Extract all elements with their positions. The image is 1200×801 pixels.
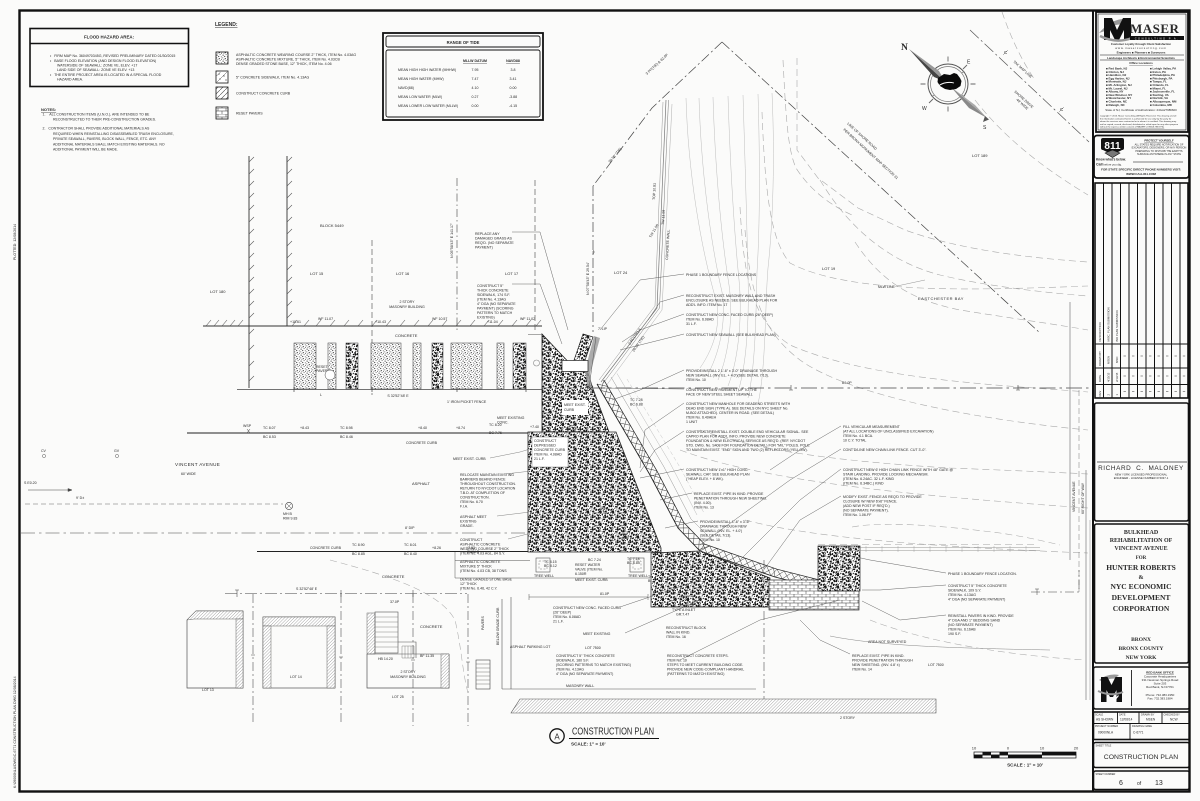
svg-text:0.00: 0.00: [510, 86, 517, 90]
svg-text:(ITEM No. 6.46, 42 C.Y.: (ITEM No. 6.46, 42 C.Y.: [460, 587, 497, 591]
svg-text:PENETRATION THROUGH NEW SHEETI: PENETRATION THROUGH NEW SHEETING.: [694, 497, 767, 501]
svg-text:(SCORING PATTERNS TO MATCH EXI: (SCORING PATTERNS TO MATCH EXISTING): [556, 663, 631, 667]
svg-text:TREE WELL: TREE WELL: [534, 574, 554, 578]
svg-text:FILL VEHICULAR MEASUREMENT: FILL VEHICULAR MEASUREMENT: [843, 425, 901, 429]
svg-text:WEARING COURSE 2" THICK: WEARING COURSE 2" THICK: [460, 547, 510, 551]
svg-text:VINCENT AVENUE: VINCENT AVENUE: [1072, 481, 1076, 512]
svg-text:ASPHALTIC CONCRETE WEARING COU: ASPHALTIC CONCRETE WEARING COURSE 2" THI…: [236, 53, 356, 57]
svg-text:+7.40: +7.40: [530, 425, 539, 429]
svg-text:0.27: 0.27: [472, 95, 479, 99]
svg-text:CV: CV: [41, 449, 47, 453]
svg-text:+8.43: +8.43: [300, 426, 309, 430]
svg-text:MSEN: MSEN: [1146, 718, 1156, 722]
svg-text:7.47: 7.47: [472, 77, 479, 81]
svg-text:ITEM No. 4.08AD: ITEM No. 4.08AD: [534, 453, 562, 457]
svg-text:W: W: [922, 106, 927, 112]
svg-text:REV: REV: [1098, 391, 1102, 397]
svg-text:Fax: 732.383.1984: Fax: 732.383.1984: [1147, 697, 1172, 701]
svg-text:BC 7.24: BC 7.24: [588, 558, 601, 562]
svg-text:THROUGHOUT CONSTRUCTION.: THROUGHOUT CONSTRUCTION.: [460, 482, 516, 486]
svg-text:5" CONCRETE SIDEWALK, ITEM No.: 5" CONCRETE SIDEWALK, ITEM No. 4.13AG: [236, 76, 310, 80]
svg-text:(26" DEEP): (26" DEEP): [553, 611, 571, 615]
svg-text:REHABILITATION OF: REHABILITATION OF: [1110, 538, 1173, 544]
svg-text:TC 8.07: TC 8.07: [263, 426, 276, 430]
svg-text:NEW SHEETING. (INV. 4.8' ±): NEW SHEETING. (INV. 4.8' ±): [852, 663, 900, 667]
svg-text:(ITEM No. 4.13AG: (ITEM No. 4.13AG: [477, 298, 506, 302]
svg-text:SURFACE ANYWHERE IN ANY STATE: SURFACE ANYWHERE IN ANY STATE: [1137, 153, 1181, 156]
svg-text:REINSTALL PAVERS IN KIND. PROV: REINSTALL PAVERS IN KIND. PROVIDE: [948, 614, 1014, 618]
svg-text:6.40: 6.40: [608, 470, 615, 474]
svg-text:CONSTRUCT NEW CONC. FACED CURB: CONSTRUCT NEW CONC. FACED CURB (26" DEEP…: [686, 313, 773, 317]
svg-text:4.10: 4.10: [472, 86, 479, 90]
svg-text:EASTCHESTER BAY: EASTCHESTER BAY: [918, 296, 964, 301]
svg-text:PROVIDE PENETRATION THROUGH: PROVIDE PENETRATION THROUGH: [852, 659, 913, 663]
svg-text:PATTERN TO MATCH: PATTERN TO MATCH: [477, 311, 513, 315]
svg-text:4" DGA (NO SEPARATE PAYMENT): 4" DGA (NO SEPARATE PAYMENT): [556, 672, 613, 676]
svg-text:BRONX COUNTY: BRONX COUNTY: [1118, 646, 1163, 652]
svg-text:21 L.F.: 21 L.F.: [553, 620, 564, 624]
svg-text:MEET EXISTING: MEET EXISTING: [583, 632, 611, 636]
svg-text:CLOSURE W/ NEW 6'x6" FENCE.: CLOSURE W/ NEW 6'x6" FENCE.: [843, 500, 897, 504]
svg-text:ASPHALT: ASPHALT: [412, 481, 430, 486]
svg-text:DENSE GRADED STONE BASE, 12" T: DENSE GRADED STONE BASE, 12" THICK, ITEM…: [236, 62, 332, 66]
svg-text:4" DGA (NO SEPARATE PAYMENT): 4" DGA (NO SEPARATE PAYMENT): [948, 598, 1005, 602]
svg-text:• THE ENTIRE PROJECT AREA IS: • THE ENTIRE PROJECT AREA IS LOCATED IN …: [50, 73, 162, 77]
svg-text:BF 11.35: BF 11.35: [420, 654, 434, 658]
svg-text:-3.88: -3.88: [509, 95, 517, 99]
svg-text:(NO SEPARATE PAYMENT).: (NO SEPARATE PAYMENT).: [843, 509, 889, 513]
svg-text:ASPHALT MEET: ASPHALT MEET: [460, 515, 488, 519]
svg-text:DRAWN BY: DRAWN BY: [1141, 714, 1155, 717]
svg-text:BC 8.46: BC 8.46: [340, 435, 353, 439]
svg-text:Office Locations: Office Locations: [1129, 61, 1153, 65]
svg-text:WF 11.02: WF 11.02: [520, 317, 535, 321]
svg-text:BULKHEAD: BULKHEAD: [1124, 530, 1159, 536]
svg-text:VINCENT AVENUE: VINCENT AVENUE: [175, 462, 220, 467]
svg-text:MEAN HIGH HIGH WATER (MHHW): MEAN HIGH HIGH WATER (MHHW): [398, 68, 456, 72]
svg-text:MEET EXIST. CURB: MEET EXIST. CURB: [575, 578, 608, 582]
svg-text:(ITEM No. 6.34BC.) KIND: (ITEM No. 6.34BC.) KIND: [843, 482, 884, 486]
svg-text:MIXTURE 5" THICK: MIXTURE 5" THICK: [460, 565, 492, 569]
svg-text:ITEM No. 6.08AD: ITEM No. 6.08AD: [686, 318, 714, 322]
svg-text:BC 8.40: BC 8.40: [404, 552, 417, 556]
svg-text:("HEAP ELEV. + 8 WK).: ("HEAP ELEV. + 8 WK).: [686, 477, 724, 481]
svg-text:ASPHALTIC CONCRETE MIXTURE, 5": ASPHALTIC CONCRETE MIXTURE, 5" THICK, IT…: [236, 58, 340, 62]
svg-text:LOT 7500: LOT 7500: [928, 663, 944, 667]
svg-text:RECONSTRUCT CONCRETE STEPS.: RECONSTRUCT CONCRETE STEPS.: [667, 654, 729, 658]
svg-text:NCW: NCW: [1170, 718, 1178, 722]
svg-text:PHASE 1 BOUNDARY FENCE LOCATIO: PHASE 1 BOUNDARY FENCE LOCATION.: [948, 572, 1017, 576]
svg-text:(SEE DETAIL 7/13).: (SEE DETAIL 7/13).: [700, 534, 731, 538]
svg-text:WSP: WSP: [243, 424, 252, 428]
svg-text:+11.04: +11.04: [487, 320, 498, 324]
svg-text:A: A: [554, 733, 560, 742]
svg-text:CONSTRUCT: CONSTRUCT: [460, 538, 483, 542]
svg-text:FOUNDATION & NEW ELECTRICAL SE: FOUNDATION & NEW ELECTRICAL SERVICE AS R…: [686, 439, 806, 443]
svg-text:1. ALL CONSTRUCTION ITEMS (: 1. ALL CONSTRUCTION ITEMS (U.N.O.), ARE …: [43, 113, 151, 117]
svg-text:K:\09000NLA\DWG\C-6771 CONSTRU: K:\09000NLA\DWG\C-6771 CONSTRUCTION PLAN…: [13, 676, 17, 788]
svg-text:CONSTRUCT CONCRETE CURB: CONSTRUCT CONCRETE CURB: [236, 92, 291, 96]
svg-text:GR:7.47: GR:7.47: [676, 613, 689, 617]
svg-text:State of NJ, Certificate of Au: State of NJ, Certificate of Authorizatio…: [1105, 108, 1177, 112]
svg-text:LOT 19: LOT 19: [822, 266, 836, 271]
svg-text:MASONRY WALL: MASONRY WALL: [566, 684, 594, 688]
svg-text:DAMAGED GRASS AS: DAMAGED GRASS AS: [475, 237, 512, 241]
svg-text:CONSTRUCT NEW CONC. FACED CURB: CONSTRUCT NEW CONC. FACED CURB: [553, 606, 621, 610]
svg-text:N 05°58'43" E 141.17': N 05°58'43" E 141.17': [450, 223, 454, 258]
svg-text:CONCRETE: CONCRETE: [420, 624, 443, 629]
svg-text:ADD'L INFO. ITEM No. 17: ADD'L INFO. ITEM No. 17: [686, 303, 727, 307]
svg-text:NAVD(88): NAVD(88): [398, 86, 414, 90]
svg-text:whom the services were contrac: whom the services were contracted or to …: [1100, 120, 1177, 123]
svg-text:• BASE FLOOD ELEVATION (AND: • BASE FLOOD ELEVATION (AND DESIGN FLOOD…: [50, 59, 156, 63]
svg-text:RANGE OF TIDE: RANGE OF TIDE: [447, 40, 480, 45]
svg-text:CONCRETE: CONCRETE: [395, 333, 418, 338]
svg-text:8' DIP: 8' DIP: [405, 526, 415, 530]
svg-text:BARRIERS BEHIND FENCE: BARRIERS BEHIND FENCE: [460, 478, 506, 482]
svg-text:CONSTRUCT NEW PAVEMENT UP TO T: CONSTRUCT NEW PAVEMENT UP TO THE: [686, 388, 758, 392]
svg-text:60' WIDE: 60' WIDE: [181, 472, 197, 476]
svg-text:MASONRY BUILDING: MASONRY BUILDING: [389, 305, 425, 309]
svg-text:ITEM No. 6.08AD: ITEM No. 6.08AD: [553, 615, 581, 619]
svg-text:NYC ECONOMIC: NYC ECONOMIC: [1110, 582, 1171, 591]
svg-text:SHEET TITLE: SHEET TITLE: [1096, 745, 1112, 748]
svg-text:MASONRY BUILDING: MASONRY BUILDING: [390, 675, 426, 679]
svg-text:CONSTRUCT: CONSTRUCT: [534, 439, 557, 443]
svg-text:13: 13: [1155, 780, 1163, 787]
svg-text:RESET PAVERS: RESET PAVERS: [236, 112, 263, 116]
svg-text:N 07°58'43" E 29.54': N 07°58'43" E 29.54': [586, 262, 590, 295]
svg-text:LOT 24: LOT 24: [614, 270, 628, 275]
svg-text:DEAD END SIGN (TYPE A). SEE DE: DEAD END SIGN (TYPE A). SEE DETAILS ON N…: [686, 407, 788, 411]
svg-text:without the express written co: without the express written consent of M…: [1100, 126, 1165, 129]
svg-text:CONC.: CONC.: [497, 421, 508, 425]
svg-text:TO MAINTAIN EXIST. "END" SIGN: TO MAINTAIN EXIST. "END" SIGN AND TWO (2…: [686, 448, 808, 452]
svg-text:PAVERS: PAVERS: [481, 616, 485, 630]
svg-text:Landscape Architects ■ Environ: Landscape Architects ■ Environmental Sci…: [1107, 56, 1175, 60]
svg-text:Know what's below.: Know what's below.: [1096, 158, 1126, 162]
svg-text:CONSTRUCT NEW SEAWALL (SEE BUL: CONSTRUCT NEW SEAWALL (SEE BULKHEAD PLAN…: [686, 333, 776, 337]
svg-text:BLOCK 5449: BLOCK 5449: [320, 223, 344, 228]
svg-text:REPLACE EXIST. PIPE IN KIND.: REPLACE EXIST. PIPE IN KIND.: [852, 654, 904, 658]
svg-text:31 L.F.: 31 L.F.: [686, 322, 697, 326]
svg-text:TC 8.98: TC 8.98: [340, 426, 353, 430]
svg-text:WF 11.07: WF 11.07: [318, 317, 333, 321]
svg-text:LOT 180: LOT 180: [210, 289, 226, 294]
svg-text:BC 6.88: BC 6.88: [630, 403, 643, 407]
svg-text:B9.0P: B9.0P: [842, 381, 852, 385]
svg-text:37.0P: 37.0P: [390, 600, 400, 604]
svg-text:TC 8.90: TC 8.90: [352, 543, 365, 547]
svg-text:STD. DWG. No. S408 FOR FOUNDAT: STD. DWG. No. S408 FOR FOUNDATION DETAIL…: [686, 444, 810, 448]
svg-text:81.0P: 81.0P: [600, 592, 610, 596]
svg-text:(AT ALL LOCATIONS OF UNCLASSIF: (AT ALL LOCATIONS OF UNCLASSIFIED EXCAVA…: [843, 430, 934, 434]
svg-text:PROVIDE/INSTALL 2 1'-6" x 3'-0: PROVIDE/INSTALL 2 1'-6" x 3'-0" DRAINAGE…: [686, 369, 778, 373]
svg-text:MEET EXIST.: MEET EXIST.: [564, 403, 586, 407]
svg-text:CAPRO PLAN FOR ADD'L INFO. PR: CAPRO PLAN FOR ADD'L INFO. PROVIDE NEW C…: [686, 435, 786, 439]
svg-text:LOT 25: LOT 25: [392, 695, 404, 699]
svg-text:REPLACE ANY: REPLACE ANY: [475, 232, 500, 236]
svg-text:(INV. 4.00).: (INV. 4.00).: [694, 501, 712, 505]
svg-text:(ITEM No. 6.24AC. 32 L.F. KIND: (ITEM No. 6.24AC. 32 L.F. KIND: [843, 477, 894, 481]
svg-text:www.maserconsulting.com: www.maserconsulting.com: [1115, 46, 1167, 50]
svg-text:ITEM No. 6.70: ITEM No. 6.70: [460, 500, 483, 504]
svg-text:PAYMENT) (SCORING: PAYMENT) (SCORING: [477, 307, 514, 311]
svg-text:BID PLAN SUBMISSION: BID PLAN SUBMISSION: [1115, 310, 1119, 341]
svg-text:PRIVATE SEAWALL, PAVERS, BLOCK: PRIVATE SEAWALL, PAVERS, BLOCK WALL, FEN…: [53, 137, 157, 141]
svg-text:BRONX: BRONX: [1131, 637, 1151, 643]
svg-text:SCALE : 1" = 10': SCALE : 1" = 10': [1007, 763, 1043, 768]
svg-text:RESET WATER: RESET WATER: [575, 563, 601, 567]
svg-text:CONCRETE CURB: CONCRETE CURB: [406, 441, 438, 445]
svg-text:WALL IN KIND.: WALL IN KIND.: [666, 631, 690, 635]
svg-text:MODIFY EXIST. FENCE AS REQ'D T: MODIFY EXIST. FENCE AS REQ'D TO PROVIDE: [843, 495, 922, 499]
svg-text:L: L: [320, 393, 322, 397]
svg-text:TW 11.09: TW 11.09: [661, 210, 666, 225]
svg-text:DATE: DATE: [1098, 375, 1102, 382]
svg-text:THICK CONCRETE: THICK CONCRETE: [477, 289, 509, 293]
svg-text:LOT 13: LOT 13: [202, 688, 214, 692]
svg-text:+8.74: +8.74: [456, 426, 465, 430]
svg-text:PAYMENT): PAYMENT): [475, 246, 493, 250]
svg-text:CONSULTING P.A.: CONSULTING P.A.: [1135, 36, 1180, 40]
svg-text:BC 7.76: BC 7.76: [489, 431, 502, 435]
svg-text:SIDEWALK, 109 S.Y.: SIDEWALK, 109 S.Y.: [948, 589, 981, 593]
svg-text:MSO: MSO: [1115, 356, 1119, 363]
svg-text:CONCRETE CURB: CONCRETE CURB: [310, 546, 342, 550]
svg-text:FACE OF NEW STEEL SHEET SEAWAL: FACE OF NEW STEEL SHEET SEAWALL: [686, 393, 753, 397]
svg-text:3.41: 3.41: [510, 77, 517, 81]
svg-text:of: of: [1137, 781, 1142, 787]
svg-text:ITEM No. 10: ITEM No. 10: [667, 659, 687, 663]
svg-text:LOT 14: LOT 14: [290, 675, 302, 679]
svg-text:ITEM No. 10: ITEM No. 10: [686, 378, 706, 382]
svg-text:7.95: 7.95: [472, 68, 479, 72]
svg-text:ITEM No. 4.13AG: ITEM No. 4.13AG: [948, 593, 976, 597]
svg-text:MLW LINE: MLW LINE: [878, 285, 896, 289]
svg-text:PROJECT NUMBER: PROJECT NUMBER: [1095, 725, 1118, 728]
svg-text:CONSTRUCT NEW 1'x1" HIGH CONC.: CONSTRUCT NEW 1'x1" HIGH CONC.: [686, 468, 748, 472]
svg-text:BELOW GRADE CURB: BELOW GRADE CURB: [496, 607, 500, 645]
svg-text:BC 8.85: BC 8.85: [352, 552, 365, 556]
svg-text:BC 7.21: BC 7.21: [566, 427, 579, 431]
svg-text:REQUIRED WHEN REINSTALLING DIS: REQUIRED WHEN REINSTALLING DISASSEMBLED …: [53, 132, 174, 136]
svg-text:F.I.A.: F.I.A.: [460, 505, 468, 509]
svg-text:ITEM No. 4.13AG: ITEM No. 4.13AG: [556, 668, 584, 672]
svg-text:VALVE (ITEM No.: VALVE (ITEM No.: [575, 568, 603, 572]
svg-text:MH B: MH B: [283, 512, 293, 516]
svg-text:190 S.F.: 190 S.F.: [948, 632, 961, 636]
svg-text:CONSTRUCT NEW 6' HIGH CHAIN LI: CONSTRUCT NEW 6' HIGH CHAIN LINK FENCE W…: [843, 468, 953, 472]
svg-text:+10.43: +10.43: [375, 320, 386, 324]
svg-text:ASPHALTIC CONCRETE: ASPHALTIC CONCRETE: [460, 543, 501, 547]
svg-text:PROVIDE/INSTALL 1'-6" x 3'-6": PROVIDE/INSTALL 1'-6" x 3'-6": [700, 520, 751, 524]
svg-text:CONSTRUCTION PLAN: CONSTRUCTION PLAN: [572, 727, 654, 738]
svg-text:10: 10: [1040, 746, 1045, 751]
svg-text:SEAWALL CAP. SEE BULKHEAD PLAN: SEAWALL CAP. SEE BULKHEAD PLAN: [686, 473, 750, 477]
svg-text:6.88: 6.88: [622, 536, 629, 540]
svg-text:EXISTING): EXISTING): [477, 316, 495, 320]
svg-text:Call before you dig.: Call before you dig.: [1096, 163, 1122, 167]
svg-text:SHEET NUMBER: SHEET NUMBER: [1096, 773, 1116, 776]
svg-text:SIDEWALK, 174 S.F.: SIDEWALK, 174 S.F.: [477, 293, 510, 297]
svg-text:CONSTRUCTION.: CONSTRUCTION.: [460, 496, 490, 500]
svg-text:MISC. PLAN SUBMISSION: MISC. PLAN SUBMISSION: [1107, 307, 1111, 341]
svg-text:2 STORY: 2 STORY: [400, 670, 416, 674]
svg-text:ADDITIONAL PAYMENT WILL BE MAD: ADDITIONAL PAYMENT WILL BE MADE.: [53, 148, 118, 152]
svg-text:7.5: 7.5: [600, 511, 605, 515]
svg-text:60' RIGHT OF WAY: 60' RIGHT OF WAY: [1081, 482, 1085, 514]
svg-text:PLOTTED: 12/08/2014: PLOTTED: 12/08/2014: [13, 224, 17, 260]
svg-text:TREE WELL: TREE WELL: [628, 574, 648, 578]
svg-text:S 32'52"48' E: S 32'52"48' E: [387, 394, 409, 398]
svg-text:(ITEM No. 4.03 CB, 38 TONS: (ITEM No. 4.03 CB, 38 TONS: [460, 569, 507, 573]
svg-text:ADDITIONAL MATERIALS SHALL MAT: ADDITIONAL MATERIALS SHALL MATCH EXISTIN…: [53, 142, 165, 146]
svg-text:6: 6: [1119, 780, 1123, 787]
svg-text:CONSTRUCT/REINSTALL EXIST. DOU: CONSTRUCT/REINSTALL EXIST. DOUBLE END VE…: [686, 430, 809, 434]
svg-text:T.B.D. AT COMPLETION OF: T.B.D. AT COMPLETION OF: [460, 491, 506, 495]
svg-text:■ Raleigh, NC: ■ Raleigh, NC: [1106, 103, 1126, 107]
svg-text:NEW SEAWALL (INV. EL. + 4.0')(: NEW SEAWALL (INV. EL. + 4.0')(SEE DETAIL…: [686, 374, 769, 378]
svg-text:AS SHOWN: AS SHOWN: [1096, 718, 1114, 722]
svg-text:the information contained here: the information contained herein is auth…: [1100, 117, 1172, 120]
svg-text:PHASE 1 BOUNDARY FENCE LOCATIO: PHASE 1 BOUNDARY FENCE LOCATIONS: [686, 273, 757, 277]
svg-text:1' IRON PICKET FENCE: 1' IRON PICKET FENCE: [447, 400, 487, 404]
svg-text:2 STORY: 2 STORY: [399, 300, 415, 304]
svg-text:not be copied, reused, disclos: not be copied, reused, disclosed, distri…: [1100, 123, 1179, 126]
svg-text:MLLW DATUM: MLLW DATUM: [463, 59, 487, 63]
svg-text:RICHARD C. MALONEY: RICHARD C. MALONEY: [1098, 465, 1184, 472]
svg-text:RELOCATE MAINTAIN EXISTING: RELOCATE MAINTAIN EXISTING: [460, 473, 514, 477]
svg-text:+10.61: +10.61: [290, 320, 301, 324]
svg-text:1 UNIT: 1 UNIT: [686, 420, 698, 424]
svg-text:Copyright © 2015. Maser Consul: Copyright © 2015. Maser Consulting. All …: [1100, 115, 1177, 118]
svg-text:CONCRETE CURB: CONCRETE CURB: [534, 448, 566, 452]
svg-text:ENCLOSURE AS NEEDED. SEE BULKH: ENCLOSURE AS NEEDED. SEE BULKHEAD PLAN F…: [686, 299, 778, 303]
svg-text:DRAWN BY: DRAWN BY: [1098, 351, 1102, 366]
svg-text:RECONSTRUCT BLOCK: RECONSTRUCT BLOCK: [666, 626, 707, 630]
svg-text:S 32'52"48' E: S 32'52"48' E: [296, 587, 318, 591]
svg-text:PROTECT YOURSELF: PROTECT YOURSELF: [1144, 139, 1174, 143]
svg-text:RECONSTRUCT EXIST. MASONRY WAL: RECONSTRUCT EXIST. MASONRY WALL AND TRAS…: [686, 294, 776, 298]
svg-text:Red Bank, NJ 07701: Red Bank, NJ 07701: [1146, 685, 1174, 689]
svg-text:N: N: [901, 43, 908, 53]
svg-text:CONSTRUCT NEW MANHOLE FOR DEAD: CONSTRUCT NEW MANHOLE FOR DEADEND STREET…: [686, 402, 791, 406]
svg-text:MSEN: MSEN: [1107, 356, 1111, 364]
svg-text:CONT'D/LINE NEW CHAIN LINK FEN: CONT'D/LINE NEW CHAIN LINK FENCE. CUT 3'…: [843, 448, 927, 452]
svg-text:(ADD NEW POST IF REQ'D.): (ADD NEW POST IF REQ'D.): [843, 504, 890, 508]
svg-text:M-B02 ATTACHED). CENTER IN ROA: M-B02 ATTACHED). CENTER IN ROAD. (SEE DE…: [686, 411, 774, 415]
svg-text:-4.15: -4.15: [509, 104, 517, 108]
svg-text:CORPORATION: CORPORATION: [1113, 604, 1170, 613]
svg-text:ITEM No. 16: ITEM No. 16: [666, 635, 686, 639]
svg-text:HUNTER ROBERTS: HUNTER ROBERTS: [1106, 563, 1176, 572]
svg-text:FLOOD HAZARD AREA:: FLOOD HAZARD AREA:: [84, 35, 135, 40]
svg-text:HAZARD AREA.: HAZARD AREA.: [57, 78, 83, 82]
svg-text:10 C.Y. TOTAL: 10 C.Y. TOTAL: [843, 439, 866, 443]
svg-text:+8.26: +8.26: [432, 546, 441, 550]
svg-text:12" THICK: 12" THICK: [460, 582, 477, 586]
svg-text:20: 20: [1074, 746, 1079, 751]
svg-text:MEET EXIST. CURB: MEET EXIST. CURB: [453, 457, 486, 461]
svg-text:NOTES:: NOTES:: [41, 107, 56, 112]
svg-text:21 L.F.: 21 L.F.: [534, 457, 545, 461]
svg-text:CONSTRUCTION PLAN: CONSTRUCTION PLAN: [1104, 754, 1178, 761]
svg-text:MEAN LOWER LOW WATER (MLLW): MEAN LOWER LOW WATER (MLLW): [398, 104, 458, 108]
svg-text:WATERSIDE OF SEAWALL: ZONE VE,: WATERSIDE OF SEAWALL: ZONE VE, ELEV. +17: [57, 64, 137, 68]
svg-text:7' LIP: 7' LIP: [598, 327, 608, 331]
svg-text:2. CONTRACTOR SHALL PROVIDE: 2. CONTRACTOR SHALL PROVIDE ADDITIONAL M…: [43, 127, 150, 131]
svg-text:GRADE.: GRADE.: [460, 524, 474, 528]
svg-text:3.8: 3.8: [511, 68, 516, 72]
svg-text:• FIRM MAP No. 3604970345G,: • FIRM MAP No. 3604970345G, REVISED PREL…: [50, 54, 175, 58]
svg-text:LOT 15: LOT 15: [310, 271, 324, 276]
svg-text:PROVIDE NEW CODE-COMPLIANT HAN: PROVIDE NEW CODE-COMPLIANT HANDRAIL: [667, 668, 744, 672]
svg-text:DEPRESSED: DEPRESSED: [534, 444, 556, 448]
svg-text:STAIR LANDING. PROVIDE LOCKING: STAIR LANDING. PROVIDE LOCKING MECHANISM…: [843, 473, 928, 477]
svg-text:ASPHALT PARKING LOT: ASPHALT PARKING LOT: [510, 645, 551, 649]
svg-text:(ITEM No. 4.03 AGL, 84 S.Y.: (ITEM No. 4.03 AGL, 84 S.Y.: [460, 552, 505, 556]
svg-text:BC 6.85: BC 6.85: [627, 561, 640, 565]
svg-text:4/15/15: 4/15/15: [1107, 372, 1111, 382]
svg-text:+8.40: +8.40: [418, 426, 427, 430]
svg-text:&: &: [1139, 575, 1144, 581]
svg-text:RIM 9.83: RIM 9.83: [283, 517, 297, 521]
svg-text:LAND SIDE OF SEAWALL: ZONE VE: LAND SIDE OF SEAWALL: ZONE VE ELEV. +13: [57, 68, 134, 72]
svg-text:(PATTERNS TO MATCH EXISTING): (PATTERNS TO MATCH EXISTING): [667, 672, 724, 676]
svg-text:2 STORY: 2 STORY: [840, 716, 856, 720]
svg-text:0.00: 0.00: [472, 104, 479, 108]
svg-text:6.150R: 6.150R: [575, 572, 587, 576]
svg-text:SCALE: SCALE: [1095, 714, 1104, 717]
svg-text:STEPS TO MEET CURRENT BUILDING: STEPS TO MEET CURRENT BUILDING CODE.: [667, 663, 743, 667]
svg-text:CONSTRUCT 5" THICK CONCRETE: CONSTRUCT 5" THICK CONCRETE: [556, 654, 616, 658]
svg-text:ITEM No. 1.06-FF: ITEM No. 1.06-FF: [843, 513, 872, 517]
svg-text:9' D±: 9' D±: [76, 496, 84, 500]
svg-text:MEAN HIGH WATER (MHW): MEAN HIGH WATER (MHW): [398, 77, 444, 81]
svg-text:(NO SEPARATE PAYMENT): (NO SEPARATE PAYMENT): [948, 623, 993, 627]
svg-text:2/13/15: 2/13/15: [1115, 372, 1119, 382]
svg-text:HB 14.20: HB 14.20: [378, 657, 393, 661]
svg-text:DESCRIPTION: DESCRIPTION: [1098, 322, 1102, 341]
svg-text:NAVD88: NAVD88: [506, 59, 520, 63]
svg-text:DATE: DATE: [1119, 714, 1126, 717]
svg-text:LOT 17: LOT 17: [505, 271, 519, 276]
svg-text:10: 10: [972, 746, 977, 751]
svg-text:BC 8.12: BC 8.12: [544, 564, 557, 568]
svg-text:ITEM No. 6.16AB: ITEM No. 6.16AB: [948, 628, 976, 632]
svg-text:ITEM No. 14: ITEM No. 14: [852, 668, 872, 672]
svg-text:ITEM No. 4.1 BCA.: ITEM No. 4.1 BCA.: [843, 434, 873, 438]
svg-text:SCALE: 1" = 10': SCALE: 1" = 10': [571, 742, 606, 747]
svg-text:GV: GV: [114, 449, 120, 453]
svg-text:4" DGA AND 1" BEDDING SAND: 4" DGA AND 1" BEDDING SAND: [948, 619, 1001, 623]
svg-text:4" DGA (NO SEPARATE: 4" DGA (NO SEPARATE: [477, 302, 516, 306]
svg-text:FOR STATE SPECIFIC DIRECT PHON: FOR STATE SPECIFIC DIRECT PHONE NUMBERS …: [1101, 168, 1181, 172]
svg-text:LEGEND:: LEGEND:: [215, 22, 238, 28]
svg-text:EXISTING: EXISTING: [460, 520, 477, 524]
svg-text:ITEM No. 6.40AEH: ITEM No. 6.40AEH: [686, 416, 717, 420]
svg-text:FOR: FOR: [1136, 556, 1147, 561]
svg-text:S E0.20: S E0.20: [24, 481, 37, 485]
svg-text:CONSTRUCT 5" THICK CONCRETE: CONSTRUCT 5" THICK CONCRETE: [948, 584, 1008, 588]
svg-text:SIDEWALK, 180 S.F.: SIDEWALK, 180 S.F.: [556, 659, 589, 663]
svg-text:TC 8.01: TC 8.01: [404, 543, 417, 547]
svg-text:ITEM No. 10: ITEM No. 10: [700, 538, 720, 542]
svg-text:MEAN LOW WATER (MLW): MEAN LOW WATER (MLW): [398, 95, 442, 99]
svg-text:ENGINEER - LICENSE NUMBER 0740: ENGINEER - LICENSE NUMBER 074037-1: [1114, 476, 1169, 480]
svg-text:MEET EXISTING: MEET EXISTING: [497, 416, 525, 420]
